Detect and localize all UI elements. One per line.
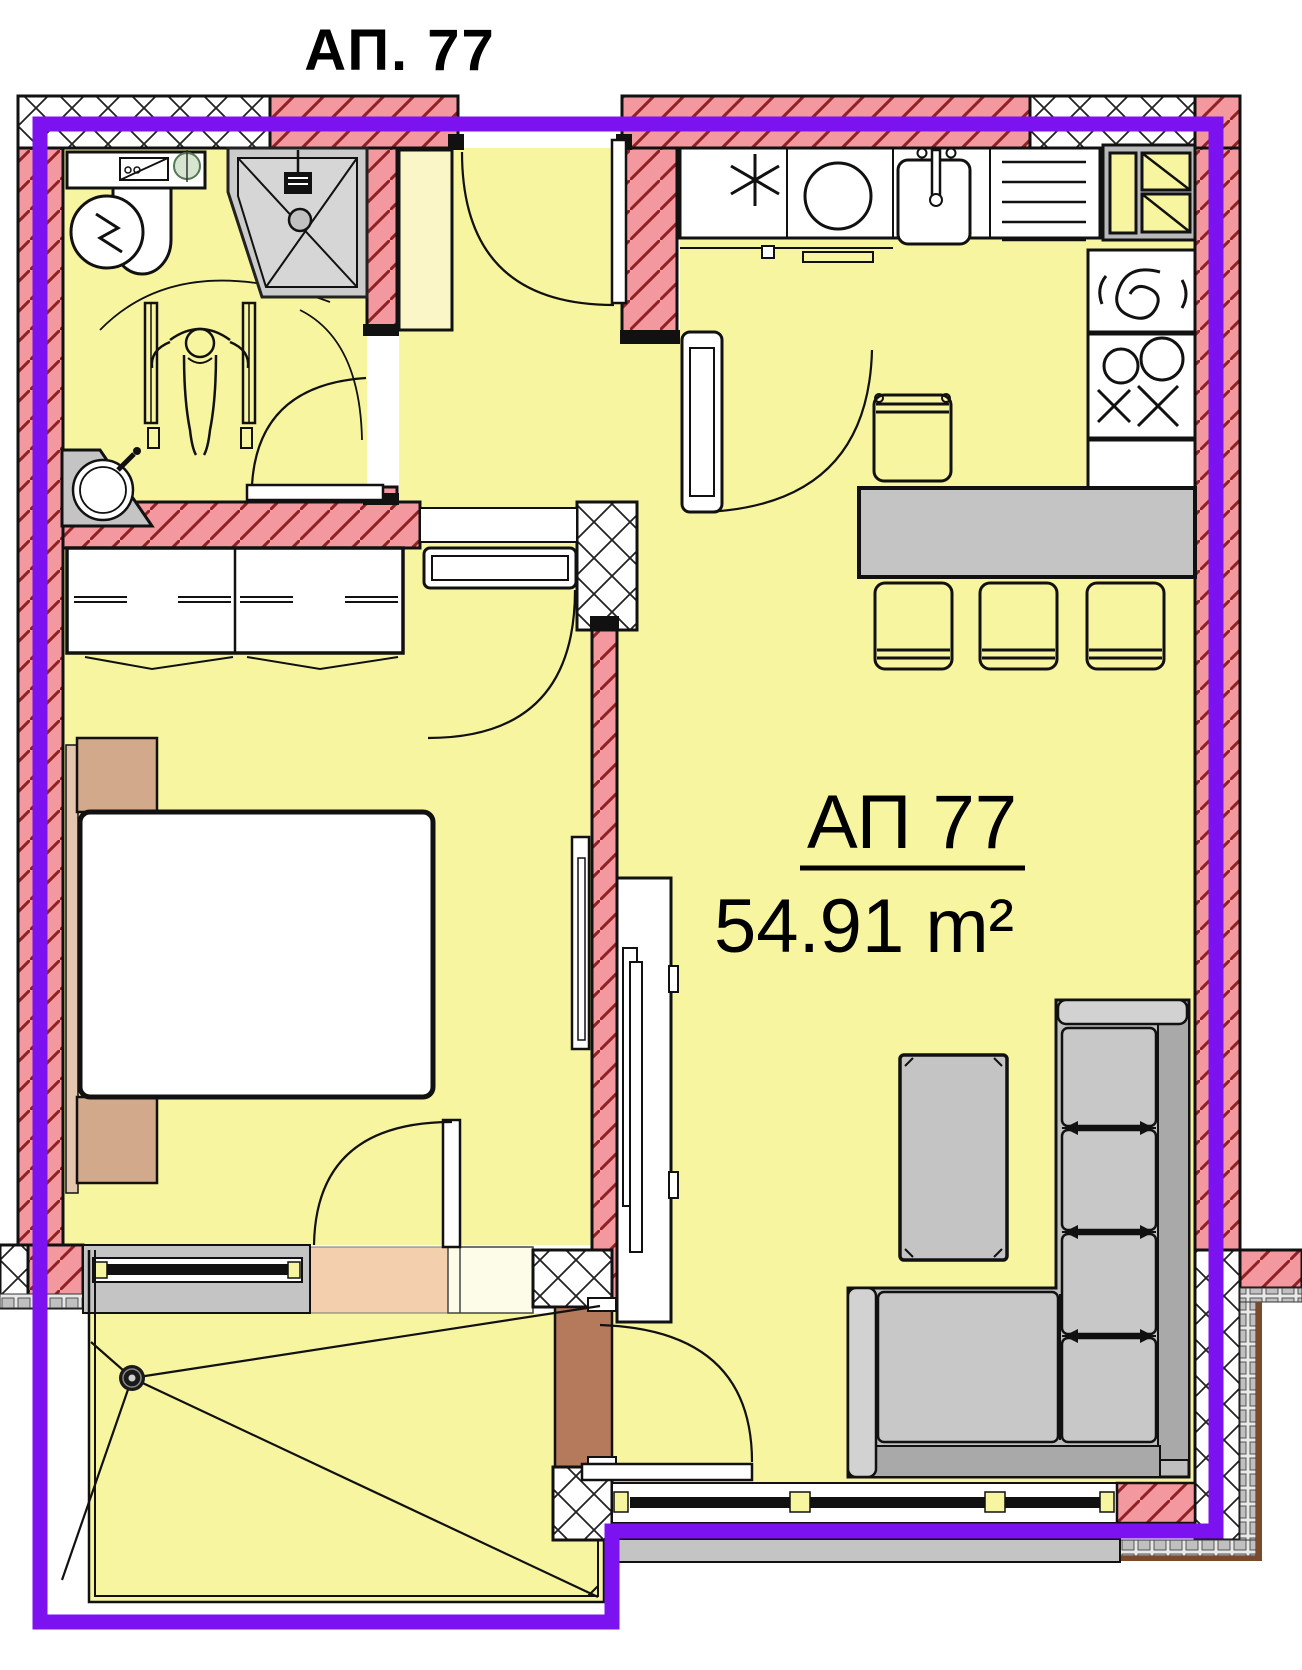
wall-bathroom-right — [367, 148, 397, 330]
door-stop-notch — [588, 1298, 616, 1311]
nightstand — [77, 738, 157, 812]
window-mullion — [790, 1492, 810, 1512]
hall-cabinet — [399, 150, 452, 330]
bar-stool — [1087, 583, 1164, 669]
tv-bedroom-panel — [578, 858, 585, 1040]
counter-handle — [762, 246, 774, 258]
toilet-flush-circle — [71, 196, 143, 268]
sofa-backrest — [856, 1446, 1160, 1477]
media-unit-panel — [630, 962, 642, 1252]
window-jamb — [614, 1492, 628, 1512]
kitchen-cabinet — [1088, 440, 1195, 488]
person-head — [186, 329, 214, 357]
unit-area: 54.91 m² — [714, 884, 1014, 969]
balcony-floor — [89, 1313, 604, 1602]
bedroom-door-leaf — [424, 548, 576, 588]
sink-drain — [930, 194, 942, 206]
plan-title: АП. 77 — [304, 18, 496, 83]
media-unit-tab — [669, 966, 678, 992]
window-jamb — [95, 1262, 107, 1278]
window-glazing — [630, 1497, 1100, 1508]
insul-bottom-h — [1117, 1540, 1256, 1556]
window-jamb — [288, 1262, 300, 1278]
insul-right-v — [1240, 1302, 1256, 1540]
hall-floor-2 — [622, 332, 680, 508]
wall-end-cap — [620, 330, 680, 344]
wall-hall-kitchen — [622, 148, 677, 332]
living-window — [605, 1483, 1195, 1562]
living-floor-2 — [637, 508, 680, 630]
insul-brown-line-h — [1117, 1556, 1262, 1561]
floor-plan-drawing: АП. 77 АП 77 54.91 m² — [0, 0, 1302, 1670]
unit-label: АП 77 — [807, 780, 1017, 865]
shower-drain-icon — [289, 209, 311, 231]
wall-balcony-living — [555, 1307, 612, 1467]
column-existing — [577, 502, 637, 630]
sink-faucet-icon — [932, 150, 940, 198]
media-unit-tab — [669, 1172, 678, 1198]
sofa-cushion — [878, 1292, 1058, 1442]
entrance-door-leaf — [612, 140, 626, 303]
sofa-armrest — [1058, 1000, 1187, 1024]
bedroom-door-sill — [420, 508, 577, 542]
bar-stool — [875, 583, 952, 669]
bar-stool — [874, 394, 951, 481]
washbasin-tap-knob — [133, 447, 141, 455]
bar-stool — [980, 583, 1057, 669]
window-glazing — [100, 1264, 295, 1275]
bedroom-window — [83, 1245, 310, 1313]
bathroom-door-leaf — [247, 485, 383, 500]
sofa-cushion — [1062, 1234, 1156, 1334]
counter-handle-bar — [803, 252, 873, 262]
vent-shaft-slot — [1110, 153, 1136, 233]
sofa-cushion — [1062, 1028, 1156, 1126]
sofa-backrest — [1158, 1008, 1189, 1460]
sofa-cushion-corner — [1062, 1338, 1156, 1442]
insul-brown-line-v — [1256, 1302, 1262, 1556]
washbasin — [73, 460, 133, 520]
bar-counter — [859, 488, 1195, 577]
washing-machine-icon — [805, 163, 871, 229]
coffee-table — [900, 1055, 1007, 1260]
wall-end-cap — [590, 616, 619, 630]
nightstand — [77, 1097, 157, 1183]
bedroom-balcony-door-leaf — [443, 1120, 460, 1247]
balcony-door-threshold — [310, 1247, 448, 1313]
living-floor-4 — [612, 1307, 680, 1483]
window-mullion — [985, 1492, 1005, 1512]
sofa-armrest — [848, 1288, 876, 1477]
living-door-leaf — [682, 332, 722, 512]
bed — [80, 812, 433, 1097]
window-side-pier — [1117, 1483, 1195, 1523]
balcony-drain-center — [129, 1375, 136, 1382]
window-outer-sill — [605, 1539, 1120, 1562]
window-jamb — [1100, 1492, 1114, 1512]
floor-plan-page: АП. 77 АП 77 54.91 m² — [0, 0, 1302, 1670]
wall-bedroom-living — [592, 630, 617, 1307]
door-jamb-cap — [363, 324, 399, 336]
door-jamb-cap — [448, 134, 464, 150]
stub-right-pink — [1240, 1250, 1302, 1288]
insul-right-h — [1240, 1288, 1302, 1302]
living-balcony-door-leaf — [582, 1464, 752, 1480]
sofa-cushion — [1062, 1130, 1156, 1230]
